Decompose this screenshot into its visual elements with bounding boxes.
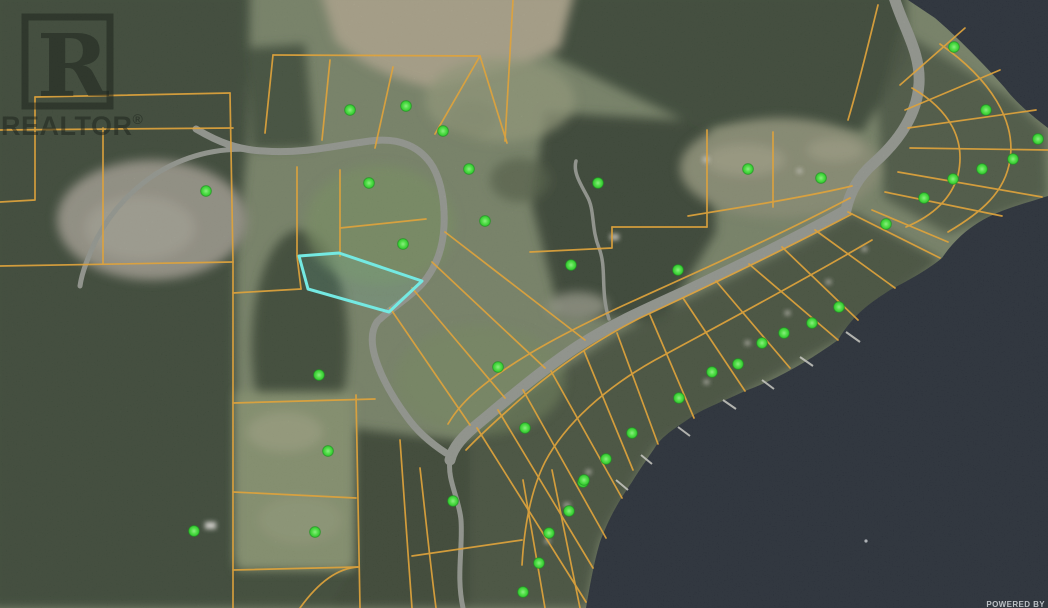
listing-marker[interactable] xyxy=(310,527,321,538)
powered-by-attribution: POWERED BY xyxy=(986,600,1045,608)
listing-marker[interactable] xyxy=(520,423,531,434)
realtor-wordmark: REALTOR® xyxy=(1,111,144,141)
listing-marker[interactable] xyxy=(534,558,545,569)
listing-marker[interactable] xyxy=(733,359,744,370)
listing-marker[interactable] xyxy=(438,126,449,137)
listing-marker[interactable] xyxy=(627,428,638,439)
listing-marker[interactable] xyxy=(398,239,409,250)
listing-marker[interactable] xyxy=(881,219,892,230)
listing-marker[interactable] xyxy=(566,260,577,271)
listing-marker[interactable] xyxy=(981,105,992,116)
listing-marker[interactable] xyxy=(593,178,604,189)
listing-marker[interactable] xyxy=(518,587,529,598)
listing-marker[interactable] xyxy=(779,328,790,339)
listing-marker[interactable] xyxy=(601,454,612,465)
listing-marker[interactable] xyxy=(448,496,459,507)
listing-marker[interactable] xyxy=(674,393,685,404)
listing-marker[interactable] xyxy=(564,506,575,517)
listing-marker[interactable] xyxy=(977,164,988,175)
listing-marker[interactable] xyxy=(201,186,212,197)
listing-marker[interactable] xyxy=(401,101,412,112)
listing-marker[interactable] xyxy=(364,178,375,189)
map-canvas[interactable]: R REALTOR® xyxy=(0,0,1048,608)
listing-marker[interactable] xyxy=(743,164,754,175)
listing-marker[interactable] xyxy=(1033,134,1044,145)
satellite-map[interactable]: R REALTOR® POWERED BY xyxy=(0,0,1048,608)
listing-marker[interactable] xyxy=(314,370,325,381)
parcel-boundary-line xyxy=(273,55,480,56)
listing-marker[interactable] xyxy=(816,173,827,184)
listing-marker[interactable] xyxy=(345,105,356,116)
listing-marker[interactable] xyxy=(949,42,960,53)
listing-marker[interactable] xyxy=(807,318,818,329)
listing-marker[interactable] xyxy=(707,367,718,378)
listing-marker[interactable] xyxy=(189,526,200,537)
listing-marker[interactable] xyxy=(834,302,845,313)
listing-marker[interactable] xyxy=(493,362,504,373)
listing-marker[interactable] xyxy=(544,528,555,539)
listing-marker[interactable] xyxy=(480,216,491,227)
listing-marker[interactable] xyxy=(757,338,768,349)
realtor-logo-r: R xyxy=(37,16,109,117)
listing-marker[interactable] xyxy=(673,265,684,276)
listing-marker[interactable] xyxy=(919,193,930,204)
listing-marker[interactable] xyxy=(464,164,475,175)
listing-marker[interactable] xyxy=(948,174,959,185)
listing-marker[interactable] xyxy=(579,475,590,486)
listing-marker[interactable] xyxy=(1008,154,1019,165)
listing-marker[interactable] xyxy=(323,446,334,457)
imagery-grain-light xyxy=(0,0,1048,608)
